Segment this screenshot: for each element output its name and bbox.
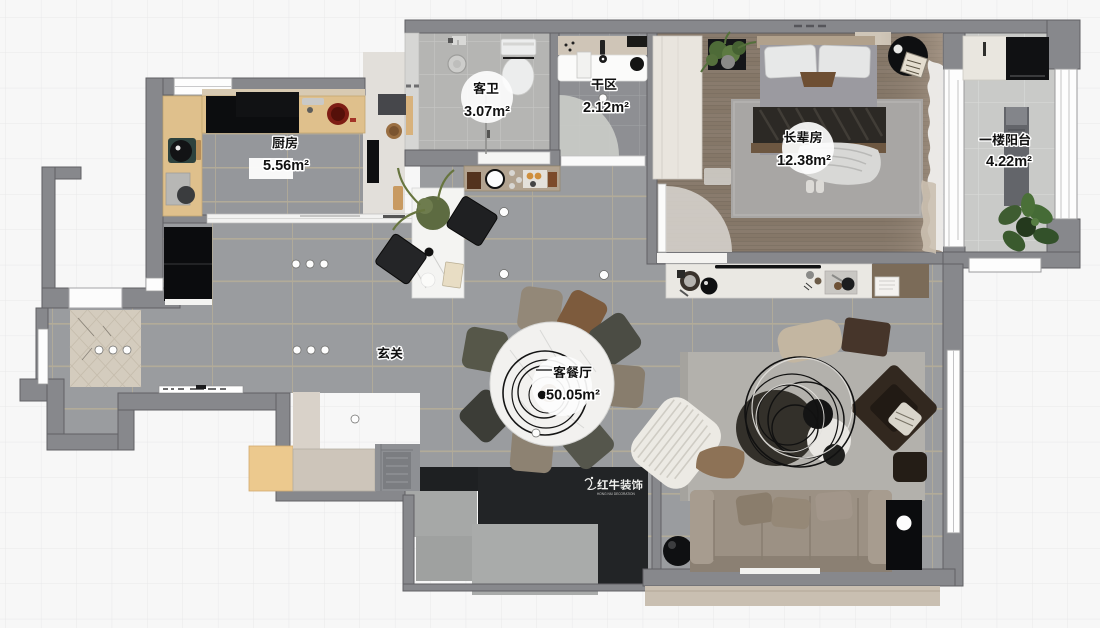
svg-text:5.56m²: 5.56m²: [263, 158, 309, 174]
svg-text:3.07m²: 3.07m²: [464, 104, 510, 120]
svg-text:4.22m²: 4.22m²: [986, 154, 1032, 170]
svg-text:HONG NIU DECORATION: HONG NIU DECORATION: [597, 492, 636, 496]
svg-text:50.05m²: 50.05m²: [546, 388, 600, 404]
svg-text:2.12m²: 2.12m²: [583, 100, 629, 116]
svg-text:12.38m²: 12.38m²: [777, 153, 831, 169]
